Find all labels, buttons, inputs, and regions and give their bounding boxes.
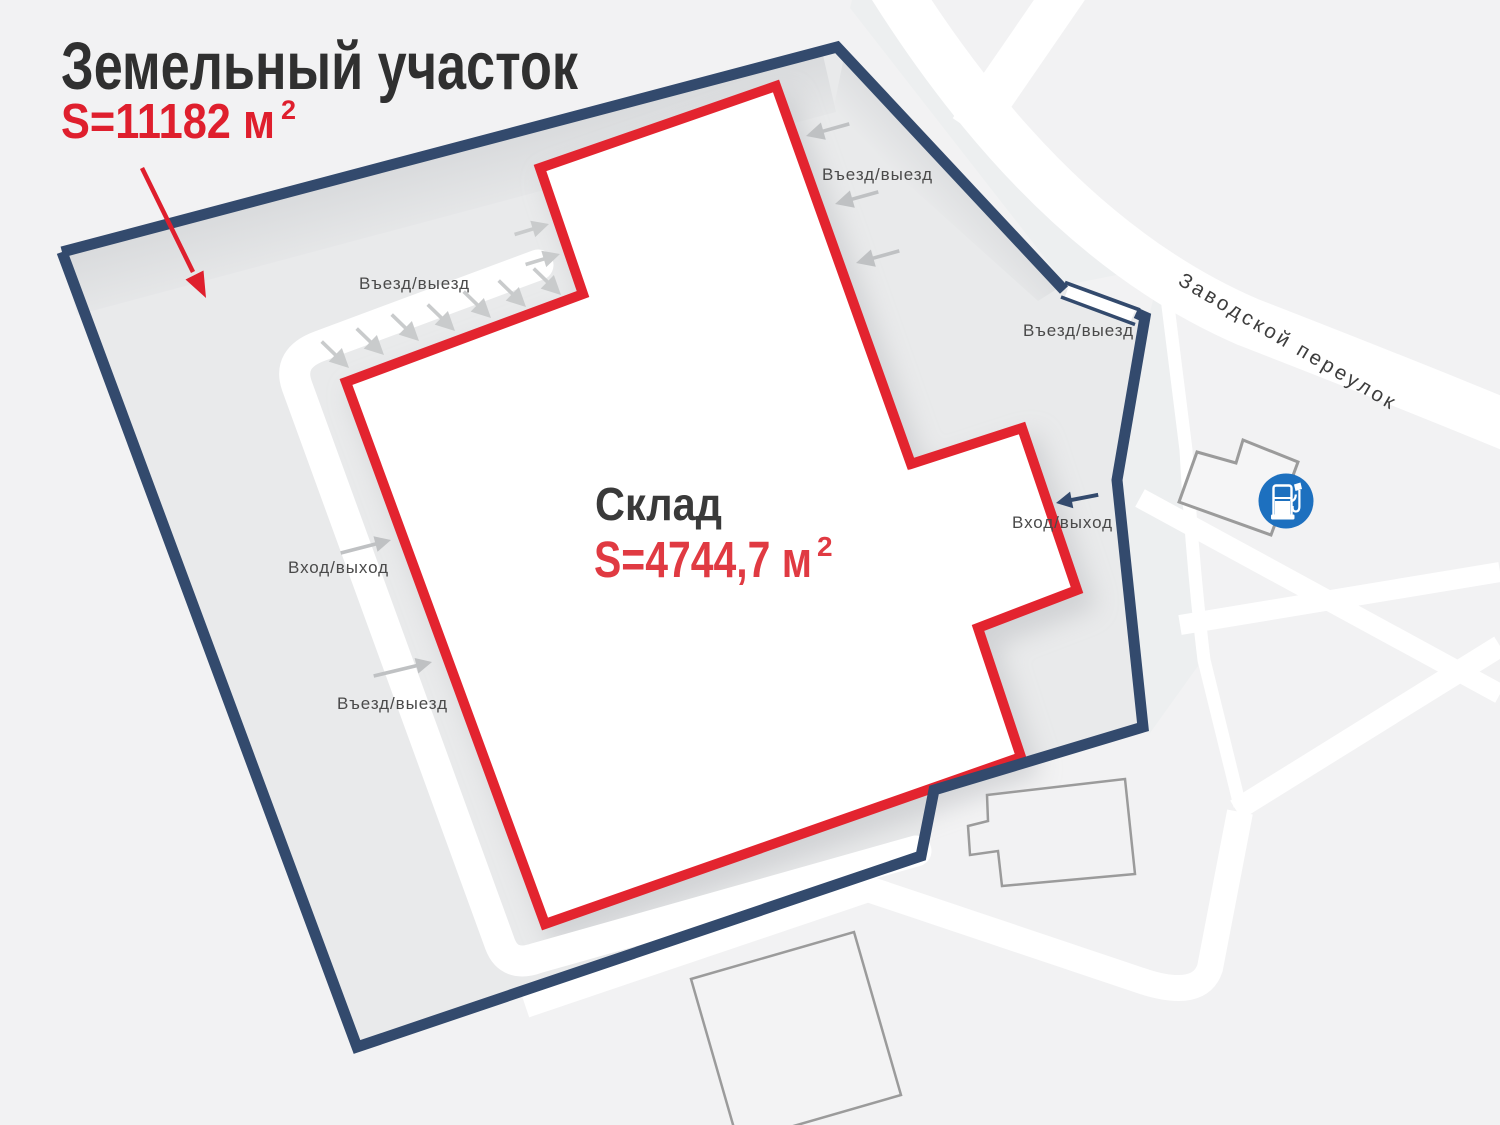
svg-text:Вход/выход: Вход/выход — [288, 558, 388, 577]
svg-text:S=4744,7 м: S=4744,7 м — [594, 531, 812, 588]
svg-text:Земельный участок: Земельный участок — [61, 29, 578, 104]
svg-text:S=11182 м: S=11182 м — [61, 95, 275, 149]
svg-text:Въезд/выезд: Въезд/выезд — [359, 274, 469, 293]
svg-text:2: 2 — [281, 95, 296, 125]
svg-text:Въезд/выезд: Въезд/выезд — [1023, 321, 1133, 340]
svg-text:Склад: Склад — [595, 478, 722, 530]
svg-text:2: 2 — [817, 531, 833, 562]
svg-text:Въезд/выезд: Въезд/выезд — [337, 694, 447, 713]
svg-text:Въезд/выезд: Въезд/выезд — [822, 165, 932, 184]
svg-text:Вход/выход: Вход/выход — [1012, 513, 1112, 532]
